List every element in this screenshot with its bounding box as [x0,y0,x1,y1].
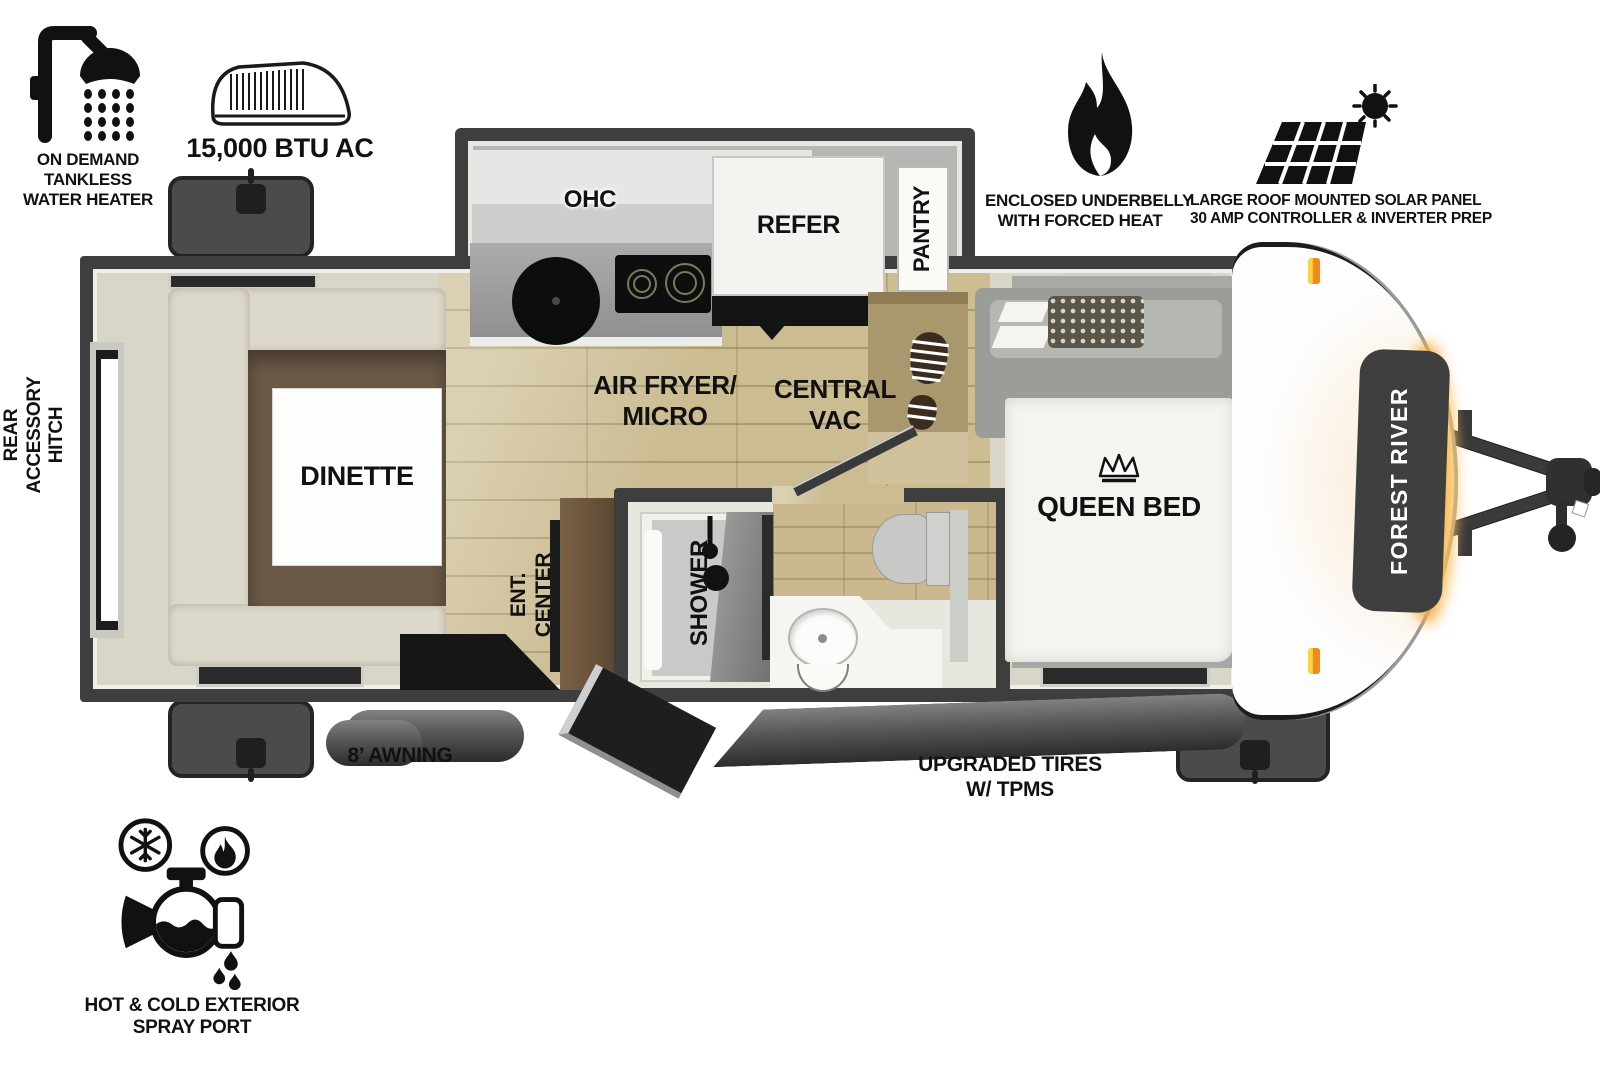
refrigerator-vent [712,296,890,326]
ent-center-cabinet [560,498,615,690]
queen-bed-mattress [1005,398,1233,662]
window-dinette-bottom [196,664,364,687]
kitchen-counter-edge [470,337,722,346]
jack-crank-rear-left [236,738,266,768]
bed-pillow [1048,296,1144,348]
refer-label: REFER [757,211,840,241]
central-vac-label: CENTRAL VAC [760,374,910,435]
tires-label: UPGRADED TIRES W/ TPMS [910,753,1110,803]
refrigerator: REFER [712,156,885,296]
bathroom-doorway [772,486,904,504]
spray-port-label: HOT & COLD EXTERIOR SPRAY PORT [82,995,302,1040]
dinette-table: DINETTE [272,388,442,566]
pantry-label: PANTRY [897,169,947,289]
jack-stem-front-left [248,168,254,184]
jack-stem-rear-right [1252,770,1258,784]
flame-icon [1056,50,1146,180]
ent-center-label: ENT. CENTER [507,520,557,670]
ac-unit-icon [203,54,355,132]
bathroom-cabinet [950,510,968,662]
headboard-accent-1 [998,302,1050,322]
brand-label: FOREST RIVER [1370,361,1430,601]
water-heater-label: ON DEMAND TANKLESS WATER HEATER [8,150,168,210]
marker-light-bottom [1308,648,1320,674]
floorplan-canvas: ON DEMAND TANKLESS WATER HEATER 15,000 B… [0,0,1600,1068]
bathroom-sink [788,608,858,668]
crown-icon [1096,452,1142,484]
tankless-water-heater-icon [28,24,150,144]
ohc-label: OHC [540,186,640,214]
shower-seat [644,530,662,670]
jack-crank-rear-right [1240,740,1270,770]
solar-panel-icon [1248,84,1398,192]
window-rear-wall [90,342,124,638]
spray-port-icon [112,812,272,992]
underbelly-label: ENCLOSED UNDERBELLY WITH FORCED HEAT [985,191,1175,231]
ac-label: 15,000 BTU AC [175,133,385,165]
jack-stem-rear-left [248,768,254,782]
shower-label: SHOWER [675,518,725,668]
awning-label: 8’ AWNING [310,744,490,769]
dinette-label: DINETTE [300,461,413,493]
rear-accessory-hitch-label: REAR ACCESSORY HITCH [0,350,70,520]
headboard-accent-2 [992,326,1053,348]
marker-light-top [1308,258,1320,284]
kitchen-sink [512,257,600,345]
solar-label: LARGE ROOF MOUNTED SOLAR PANEL 30 AMP CO… [1190,192,1430,229]
toilet-tank [926,512,950,586]
cooktop [615,255,711,313]
air-fryer-label: AIR FRYER/ MICRO [560,370,770,431]
jack-crank-front-left [236,184,266,214]
queen-bed-label: QUEEN BED [1014,490,1224,523]
